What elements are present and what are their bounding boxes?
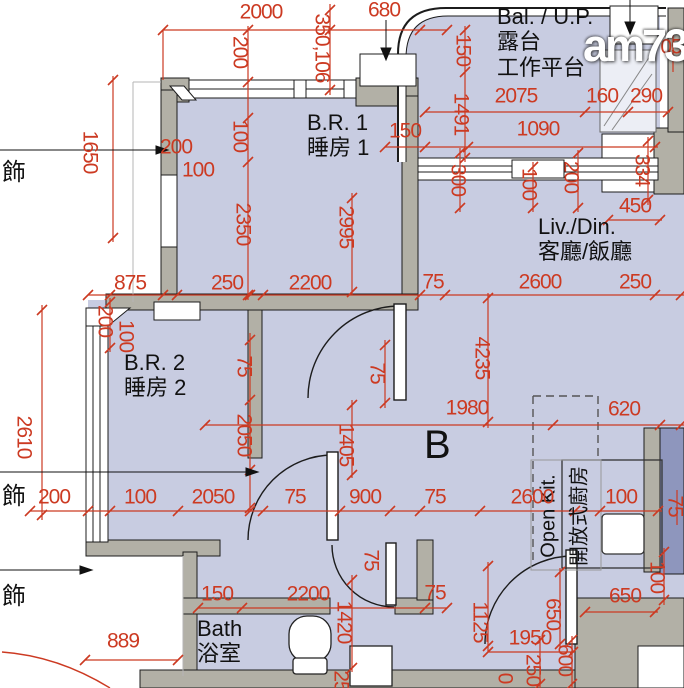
labels-overlay: 2000680350,10620010015014912075160290051… [0, 0, 684, 688]
dimension-label: 334 [632, 154, 653, 186]
dimension-label: 1090 [517, 119, 560, 140]
dimension-label: 300 [448, 164, 469, 196]
dimension-label: 1491 [451, 93, 472, 136]
room-label-livdin: Liv./Din.客廳/飯廳 [538, 214, 632, 265]
dimension-label: 2050 [234, 414, 255, 457]
room-label-openkit-zh: 開放式廚房 [569, 466, 592, 566]
dimension-label: 100 [116, 320, 137, 352]
dimension-label: 75 [234, 355, 255, 376]
dimension-label: 0 [495, 673, 516, 684]
dimension-label: 160 [586, 86, 618, 107]
dimension-label: 290 [630, 86, 662, 107]
dimension-label: 889 [107, 631, 139, 652]
dimension-label: 100 [647, 561, 668, 593]
dimension-label: 200 [160, 137, 192, 158]
dimension-label: 2050 [192, 487, 235, 508]
dimension-label: 4235 [472, 337, 493, 380]
dimension-label: 200 [95, 305, 116, 337]
dimension-label: 1420 [334, 601, 355, 644]
dimension-label: 1950 [509, 628, 552, 649]
dimension-label: 250 [211, 273, 243, 294]
dimension-label: 680 [368, 0, 400, 21]
dimension-label: 250 [619, 272, 651, 293]
dimension-label: 100 [605, 487, 637, 508]
dimension-label: 100 [124, 487, 156, 508]
dimension-label: 620 [608, 399, 640, 420]
unit-label: B [424, 422, 451, 468]
dimension-label: 75 [422, 272, 443, 293]
dimension-label: 75 [361, 549, 382, 570]
dimension-label: 75 [367, 362, 388, 383]
dimension-label: 250 [523, 654, 544, 686]
room-label-bedroom2: B.R. 2睡房 2 [124, 350, 186, 401]
dimension-label: 600 [555, 644, 576, 676]
dimension-label: 2610 [14, 416, 35, 459]
dimension-label: 2000 [240, 2, 283, 23]
dimension-label: 2200 [289, 273, 332, 294]
dimension-label: 75 [665, 495, 684, 516]
dimension-label: 2995 [336, 206, 357, 249]
dimension-label: 25 [331, 670, 352, 688]
dimension-label: 2350 [233, 203, 254, 246]
room-label-bedroom1: B.R. 1睡房 1 [307, 110, 369, 161]
decoration-leader-label: 飾 [2, 152, 26, 187]
dimension-label: 200 [561, 161, 582, 193]
dimension-label: 150 [201, 584, 233, 605]
decoration-leader-label: 飾 [2, 476, 26, 511]
dimension-label: 1980 [446, 398, 489, 419]
dimension-label: 75 [424, 487, 445, 508]
dimension-label: 1125 [470, 601, 491, 642]
dimension-label: 200 [38, 487, 70, 508]
dimension-label: 875 [114, 273, 146, 294]
floor-plan: 2000680350,10620010015014912075160290051… [0, 0, 684, 688]
decoration-leader-label: 飾 [2, 576, 26, 611]
dimension-label: 450 [619, 196, 651, 217]
dimension-label: 200 [230, 36, 251, 68]
dimension-label: 1650 [80, 131, 101, 174]
dimension-label: 150 [389, 121, 421, 142]
dimension-label: 2075 [495, 86, 538, 107]
dimension-label: 2600 [519, 272, 562, 293]
dimension-label: 100 [519, 168, 540, 200]
dimension-label: 2600 [511, 487, 554, 508]
dimension-label: 1405 [336, 424, 357, 467]
dimension-label: 75 [424, 583, 445, 604]
dimension-label: 900 [349, 487, 381, 508]
room-label-balcony: Bal. / U.P.露台工作平台 [497, 4, 593, 80]
dimension-label: 350,106 [312, 14, 333, 83]
dimension-label: 100 [182, 160, 214, 181]
room-label-bath: Bath浴室 [197, 616, 242, 667]
dimension-label: 650 [543, 598, 564, 630]
dimension-label: 650 [609, 586, 641, 607]
watermark-am730: am730 [583, 20, 684, 72]
dimension-label: 2200 [287, 584, 330, 605]
dimension-label: 150 [453, 34, 474, 66]
dimension-label: 100 [230, 120, 251, 152]
dimension-label: 75 [284, 487, 305, 508]
